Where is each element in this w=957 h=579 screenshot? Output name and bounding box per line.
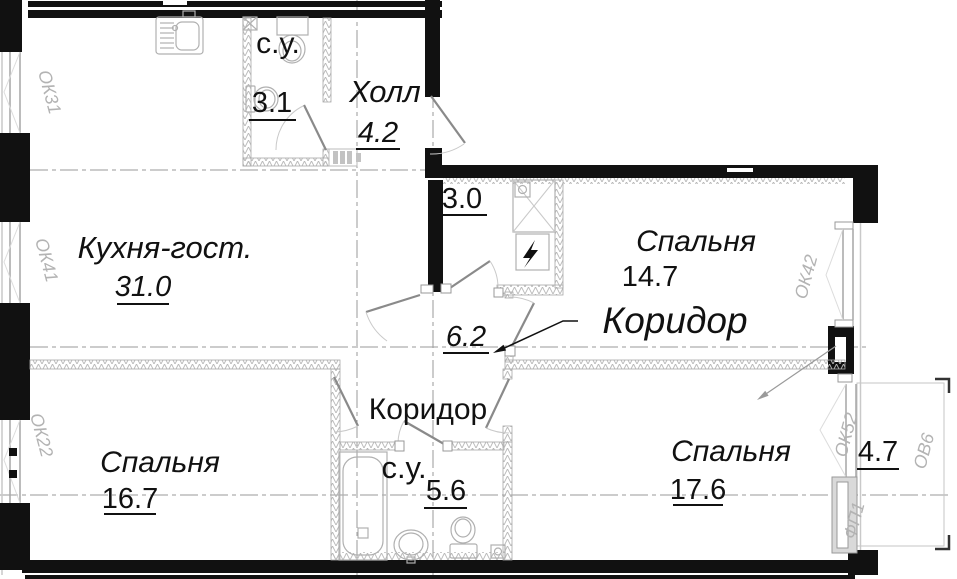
room-label-kitchen: Кухня-гост.: [78, 230, 253, 265]
room-label-bedroom-bottom-right: Спальня: [671, 435, 791, 468]
room-label-bath-bottom: с.у.: [381, 450, 426, 485]
room-label-corridor-lower: Коридор: [369, 393, 487, 426]
area-label-bedroom-bottom-right: 17.6: [670, 474, 726, 506]
area-label-closet: 3.0: [442, 183, 482, 215]
room-label-hall: Холл: [348, 74, 421, 109]
area-label-balcony: 4.7: [858, 436, 898, 468]
room-label-corridor-callout: Коридор: [602, 300, 747, 341]
room-label-bath-top: с.у.: [256, 27, 300, 60]
area-label-corridor: 6.2: [446, 321, 486, 353]
floor-plan-drawing: с.у. 3.1 Холл 4.2 Кухня-гост. 31.0 3.0 С…: [0, 0, 957, 579]
area-label-kitchen: 31.0: [115, 271, 171, 303]
floor-plan-page: с.у. 3.1 Холл 4.2 Кухня-гост. 31.0 3.0 С…: [0, 0, 957, 579]
area-label-bath-top: 3.1: [252, 87, 292, 119]
room-label-bedroom-top-right: Спальня: [636, 225, 756, 258]
area-label-bedroom-bottom-left: 16.7: [102, 483, 158, 515]
area-label-bath-bottom: 5.6: [426, 475, 466, 507]
room-label-bedroom-bottom-left: Спальня: [100, 446, 220, 479]
entrance-mat: [329, 149, 361, 166]
area-label-bedroom-top-right: 14.7: [622, 261, 678, 293]
area-label-hall: 4.2: [358, 117, 398, 149]
